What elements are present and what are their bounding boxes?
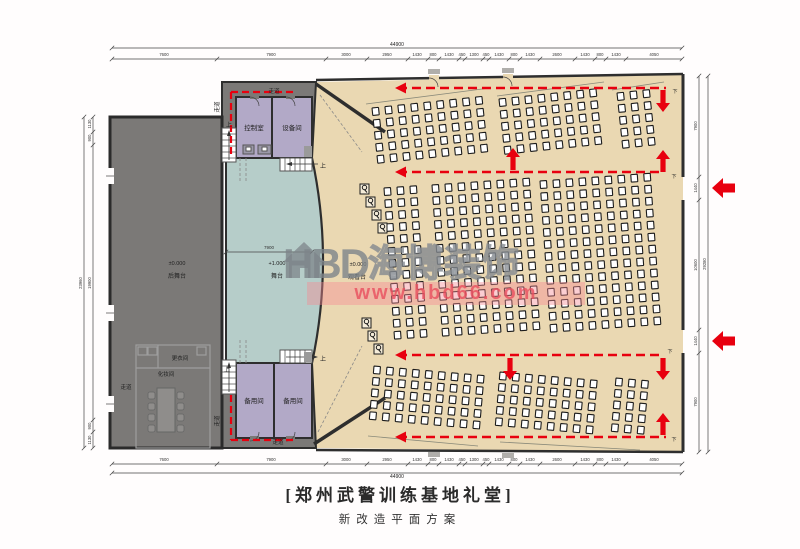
dimension-label: 1430 xyxy=(494,457,504,462)
dimension-label: 3000 xyxy=(341,52,351,57)
seat xyxy=(372,107,379,115)
seat xyxy=(621,128,628,136)
vip-seat xyxy=(360,184,369,194)
seat xyxy=(627,391,634,399)
seat xyxy=(398,380,405,388)
seat xyxy=(560,275,567,283)
seat xyxy=(399,223,406,231)
dimension-label: 450 xyxy=(459,52,467,57)
seat xyxy=(539,106,546,114)
seat xyxy=(578,102,585,110)
seat xyxy=(373,366,380,374)
seat xyxy=(626,402,633,410)
seat xyxy=(541,193,548,201)
seat xyxy=(544,240,551,248)
seat xyxy=(447,208,454,216)
seat xyxy=(611,424,618,432)
seat xyxy=(551,93,558,101)
stair-up-1: 上 xyxy=(226,121,232,129)
dim-top-total: 44900 xyxy=(390,42,404,48)
entrance-arrow xyxy=(712,178,735,198)
vip-seat xyxy=(372,210,381,220)
seat xyxy=(513,109,520,117)
seat xyxy=(575,402,582,410)
seat xyxy=(445,184,452,192)
seat xyxy=(473,218,480,226)
seat xyxy=(486,205,493,213)
seat xyxy=(386,118,393,126)
seat xyxy=(433,197,440,205)
seat xyxy=(453,303,460,311)
seat xyxy=(467,314,474,322)
dimension-label: 7900 xyxy=(266,52,276,57)
level-backstage-value: ±0.000 xyxy=(169,261,186,267)
seat xyxy=(654,317,661,325)
dimension-label: 2950 xyxy=(382,457,392,462)
seat xyxy=(555,216,562,224)
seat xyxy=(619,199,626,207)
seat xyxy=(490,265,497,273)
seat xyxy=(594,213,601,221)
seat xyxy=(574,413,581,421)
seat xyxy=(420,329,427,337)
level-audience-value: ±0.000 xyxy=(350,262,367,268)
seat xyxy=(635,139,642,147)
seat xyxy=(545,252,552,260)
seat xyxy=(475,398,482,406)
seat xyxy=(622,235,629,243)
seat xyxy=(551,377,558,385)
seat xyxy=(637,270,644,278)
corridor-bottom-label: 走道 xyxy=(272,438,284,446)
seat xyxy=(508,419,515,427)
seat xyxy=(533,322,540,330)
seat xyxy=(426,126,433,134)
seat xyxy=(562,401,569,409)
dimension-label: 1130 xyxy=(87,119,92,129)
seat xyxy=(462,397,469,405)
seat xyxy=(415,139,422,147)
seat xyxy=(392,307,399,315)
seat xyxy=(595,225,602,233)
seat xyxy=(639,403,646,411)
seat xyxy=(497,180,504,188)
seat xyxy=(540,181,547,189)
seat xyxy=(550,388,557,396)
seat xyxy=(609,236,616,244)
seat xyxy=(524,190,531,198)
seat xyxy=(453,135,460,143)
seat xyxy=(386,211,393,219)
seat xyxy=(607,200,614,208)
seat xyxy=(590,380,597,388)
seat xyxy=(464,110,471,118)
dimension-label: 1430 xyxy=(412,457,422,462)
seat xyxy=(500,228,507,236)
seat xyxy=(599,273,606,281)
seat xyxy=(407,330,414,338)
seat xyxy=(641,318,648,326)
seat xyxy=(486,217,493,225)
seat xyxy=(581,214,588,222)
seat xyxy=(568,203,575,211)
seat xyxy=(645,185,652,193)
seat xyxy=(453,291,460,299)
seat xyxy=(536,398,543,406)
room-makeup-label: 化妆间 xyxy=(158,370,175,378)
corridor-left-top-label: 走道 xyxy=(213,101,221,113)
seat xyxy=(387,130,394,138)
seat xyxy=(523,178,530,186)
seat xyxy=(613,401,620,409)
drawing-title: [郑州武警训练基地礼堂] xyxy=(0,481,800,506)
seat xyxy=(481,325,488,333)
seat xyxy=(615,378,622,386)
seat xyxy=(633,210,640,218)
seat xyxy=(529,131,536,139)
seat xyxy=(452,123,459,131)
seat xyxy=(450,384,457,392)
dimension-label: 2600 xyxy=(552,457,562,462)
seat xyxy=(549,312,556,320)
seat xyxy=(611,260,618,268)
seat xyxy=(597,249,604,257)
seat xyxy=(460,420,467,428)
seat xyxy=(640,392,647,400)
dimension-label: 1430 xyxy=(444,52,454,57)
stair-bottom-right xyxy=(280,350,318,363)
seat xyxy=(644,173,651,181)
dim-bottom-total: 44900 xyxy=(390,474,404,480)
seat xyxy=(455,147,462,155)
seat xyxy=(400,128,407,136)
seat xyxy=(589,321,596,329)
seat xyxy=(543,228,550,236)
seat xyxy=(415,258,422,266)
seat xyxy=(504,276,511,284)
seat xyxy=(529,262,536,270)
seat xyxy=(468,326,475,334)
seat xyxy=(376,143,383,151)
seat xyxy=(405,294,412,302)
seat xyxy=(548,300,555,308)
dimension-label: 23960 xyxy=(78,277,83,289)
dimension-label: 800 xyxy=(597,457,605,462)
seat xyxy=(605,176,612,184)
seat xyxy=(494,325,501,333)
seat xyxy=(438,112,445,120)
seat xyxy=(474,409,481,417)
seat xyxy=(471,182,478,190)
seat xyxy=(499,216,506,224)
seat xyxy=(559,263,566,271)
seat xyxy=(404,282,411,290)
seat xyxy=(480,144,487,152)
seat xyxy=(412,210,419,218)
seat xyxy=(582,138,589,146)
seat xyxy=(556,141,563,149)
seat xyxy=(411,381,418,389)
seat xyxy=(432,185,439,193)
seat xyxy=(450,255,457,263)
seat xyxy=(412,369,419,377)
seat xyxy=(403,152,410,160)
dimension-label: 7900 xyxy=(266,457,276,462)
seat xyxy=(521,420,528,428)
seat xyxy=(383,402,390,410)
dimension-label: 900 xyxy=(87,422,92,430)
seat xyxy=(530,286,537,294)
seat xyxy=(550,324,557,332)
seat xyxy=(434,417,441,425)
seat xyxy=(525,214,532,222)
seat xyxy=(477,266,484,274)
seat xyxy=(614,389,621,397)
floor-plan-drawing: 7600790030002950143080014304501300450143… xyxy=(0,0,800,549)
seat xyxy=(542,130,549,138)
seat xyxy=(595,137,602,145)
seat xyxy=(648,137,655,145)
seat xyxy=(425,371,432,379)
seat xyxy=(468,146,475,154)
seat xyxy=(567,191,574,199)
room-equipment-label: 设备间 xyxy=(282,123,302,132)
seat xyxy=(398,105,405,113)
seat xyxy=(643,90,650,98)
level-audience-label: 观看台 xyxy=(348,273,366,281)
room-control-label: 控制室 xyxy=(244,123,264,132)
seat xyxy=(498,383,505,391)
seat xyxy=(554,192,561,200)
seat xyxy=(628,319,635,327)
seat xyxy=(526,226,533,234)
seat xyxy=(644,102,651,110)
seat xyxy=(552,105,559,113)
seat xyxy=(623,247,630,255)
seat xyxy=(553,117,560,125)
seat xyxy=(393,319,400,327)
seat xyxy=(447,419,454,427)
seat xyxy=(499,98,506,106)
seat xyxy=(458,183,465,191)
seat xyxy=(583,238,590,246)
seat xyxy=(549,399,556,407)
seat xyxy=(587,414,594,422)
seat xyxy=(512,215,519,223)
seat xyxy=(577,90,584,98)
seat xyxy=(626,295,633,303)
seat xyxy=(372,377,379,385)
seat xyxy=(646,209,653,217)
dimension-label: 3000 xyxy=(341,457,351,462)
seat xyxy=(648,233,655,241)
seat xyxy=(634,127,641,135)
seat xyxy=(637,426,644,434)
seat xyxy=(635,234,642,242)
dimension-label: 1430 xyxy=(494,52,504,57)
seat xyxy=(414,246,421,254)
dimension-label: 1430 xyxy=(525,457,535,462)
seat xyxy=(548,288,555,296)
stair-up-3: 上 xyxy=(224,366,230,374)
seat xyxy=(518,299,525,307)
corridor-left-bottom-label: 走道 xyxy=(213,415,221,427)
seat xyxy=(463,385,470,393)
seat xyxy=(606,188,613,196)
seat xyxy=(394,331,401,339)
seat xyxy=(614,308,621,316)
seat xyxy=(390,154,397,162)
room-spare2-label: 备用间 xyxy=(283,396,303,405)
seat xyxy=(387,223,394,231)
dimension-label: 1430 xyxy=(580,457,590,462)
vip-seat xyxy=(366,197,375,207)
seat xyxy=(503,264,510,272)
seat xyxy=(630,91,637,99)
corridor-backstage-label: 走道 xyxy=(120,383,132,391)
seat xyxy=(478,120,485,128)
seat xyxy=(573,274,580,282)
dimension-label: 800 xyxy=(511,457,519,462)
seat xyxy=(566,179,573,187)
seat xyxy=(640,306,647,314)
seat xyxy=(580,126,587,134)
dimension-label: 1440 xyxy=(693,336,698,346)
seat xyxy=(576,322,583,330)
seat xyxy=(641,380,648,388)
stair-up-2: 上 xyxy=(320,162,326,170)
seat xyxy=(516,133,523,141)
dimension-label: 800 xyxy=(511,52,519,57)
seat xyxy=(511,203,518,211)
seat xyxy=(475,242,482,250)
seat xyxy=(405,306,412,314)
seat xyxy=(535,410,542,418)
seat xyxy=(587,298,594,306)
seat xyxy=(617,92,624,100)
dimension-label: 1430 xyxy=(611,457,621,462)
seat xyxy=(631,174,638,182)
seat xyxy=(375,131,382,139)
seat xyxy=(522,409,529,417)
seat xyxy=(397,187,404,195)
seat xyxy=(546,264,553,272)
seat xyxy=(639,294,646,302)
seat xyxy=(524,202,531,210)
seat xyxy=(459,195,466,203)
seat xyxy=(411,103,418,111)
seat xyxy=(525,374,532,382)
seat xyxy=(632,186,639,194)
dimension-label: 1130 xyxy=(87,435,92,445)
seat xyxy=(625,271,632,279)
seat xyxy=(439,124,446,132)
seat xyxy=(542,204,549,212)
seat xyxy=(502,122,509,130)
seat xyxy=(391,283,398,291)
seat xyxy=(400,235,407,243)
seat xyxy=(504,288,511,296)
seat xyxy=(622,140,629,148)
seat xyxy=(620,211,627,219)
seat xyxy=(653,305,660,313)
seat xyxy=(596,237,603,245)
seat xyxy=(561,287,568,295)
seat xyxy=(563,389,570,397)
seat xyxy=(627,307,634,315)
seat xyxy=(598,261,605,269)
seat xyxy=(476,254,483,262)
seat xyxy=(466,134,473,142)
seat xyxy=(480,314,487,322)
exit-down-3: 下 xyxy=(667,349,672,355)
seat xyxy=(446,196,453,204)
seat xyxy=(610,248,617,256)
seat xyxy=(514,239,521,247)
seat xyxy=(478,278,485,286)
seat xyxy=(564,92,571,100)
seat xyxy=(442,148,449,156)
seat xyxy=(507,324,514,332)
seat xyxy=(440,292,447,300)
seat xyxy=(395,414,402,422)
vip-seat xyxy=(374,344,383,354)
seat xyxy=(591,101,598,109)
seat xyxy=(524,386,531,394)
exit-down-2: 下 xyxy=(671,174,676,180)
seat xyxy=(419,317,426,325)
seat xyxy=(538,94,545,102)
seat xyxy=(506,312,513,320)
seat xyxy=(582,226,589,234)
exit-down-4: 下 xyxy=(671,437,676,443)
seat xyxy=(615,320,622,328)
seat xyxy=(434,208,441,216)
seat xyxy=(528,250,535,258)
seat xyxy=(636,246,643,254)
seat xyxy=(608,224,615,232)
seat xyxy=(577,379,584,387)
seat xyxy=(509,408,516,416)
seat xyxy=(398,199,405,207)
seat xyxy=(435,220,442,228)
dimension-label: 7600 xyxy=(159,457,169,462)
seat xyxy=(523,397,530,405)
seat xyxy=(574,298,581,306)
seat xyxy=(416,151,423,159)
seat xyxy=(386,367,393,375)
dimension-label: 1430 xyxy=(611,52,621,57)
room-changing-label: 更衣间 xyxy=(172,354,189,362)
seat xyxy=(503,134,510,142)
seat xyxy=(438,268,445,276)
seat xyxy=(448,232,455,240)
seat xyxy=(632,115,639,123)
seat xyxy=(369,412,376,420)
seat xyxy=(465,290,472,298)
seat xyxy=(505,300,512,308)
seat xyxy=(576,390,583,398)
seat xyxy=(562,311,569,319)
seat xyxy=(409,404,416,412)
seat xyxy=(464,374,471,382)
seat xyxy=(514,121,521,129)
seat xyxy=(413,234,420,242)
seat xyxy=(478,290,485,298)
seat xyxy=(387,235,394,243)
seat xyxy=(586,426,593,434)
seat xyxy=(495,418,502,426)
